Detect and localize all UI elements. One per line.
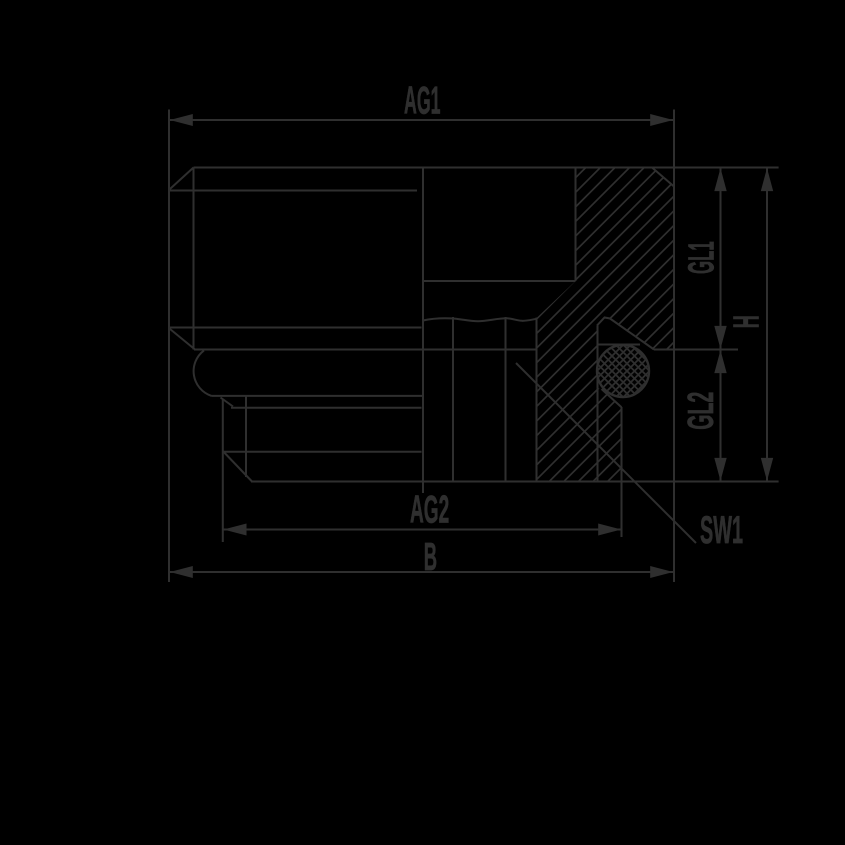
svg-text:GL1: GL1 bbox=[681, 241, 722, 274]
svg-text:AG1: AG1 bbox=[404, 80, 441, 123]
svg-text:GL2: GL2 bbox=[680, 392, 721, 430]
svg-text:B: B bbox=[424, 536, 437, 579]
svg-text:H: H bbox=[726, 315, 767, 328]
svg-text:AG2: AG2 bbox=[410, 488, 449, 531]
svg-text:SW1: SW1 bbox=[700, 509, 743, 552]
